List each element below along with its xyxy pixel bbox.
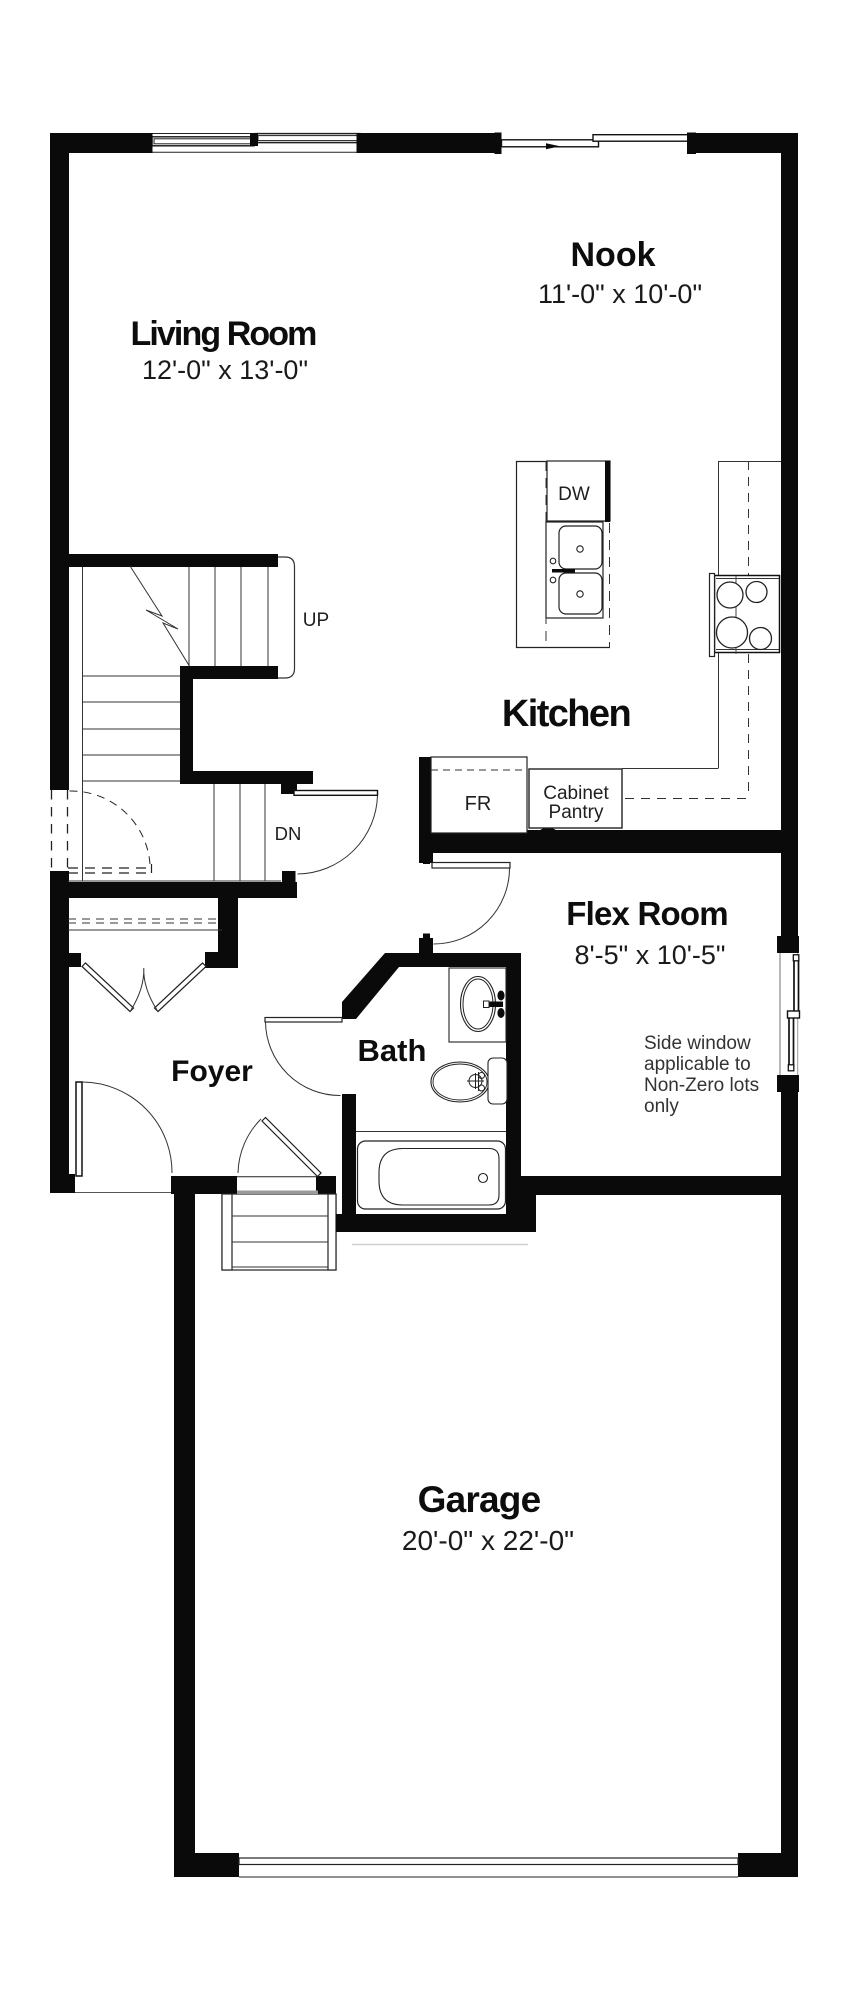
svg-text:Living Room: Living Room [131, 315, 317, 353]
svg-text:FR: FR [465, 793, 492, 815]
svg-text:12'-0" x 13'-0": 12'-0" x 13'-0" [142, 355, 308, 385]
svg-text:Garage: Garage [418, 1479, 541, 1520]
svg-text:8'-5" x 10'-5": 8'-5" x 10'-5" [574, 940, 725, 970]
svg-text:11'-0" x 10'-0": 11'-0" x 10'-0" [538, 279, 702, 309]
svg-text:DW: DW [558, 484, 590, 505]
svg-text:only: only [644, 1096, 679, 1117]
svg-text:applicable to: applicable to [644, 1054, 751, 1075]
svg-text:Foyer: Foyer [171, 1055, 253, 1088]
svg-text:Bath: Bath [358, 1033, 427, 1068]
svg-text:Nook: Nook [571, 236, 656, 274]
svg-text:DN: DN [275, 823, 302, 844]
svg-text:Side window: Side window [644, 1033, 751, 1054]
svg-text:Non-Zero lots: Non-Zero lots [644, 1075, 759, 1096]
svg-text:Flex Room: Flex Room [566, 895, 728, 932]
svg-text:Cabinet: Cabinet [543, 783, 609, 804]
svg-text:Pantry: Pantry [549, 802, 604, 823]
svg-text:Kitchen: Kitchen [502, 693, 630, 735]
svg-text:20'-0" x 22'-0": 20'-0" x 22'-0" [402, 1525, 574, 1556]
svg-text:UP: UP [303, 610, 329, 631]
